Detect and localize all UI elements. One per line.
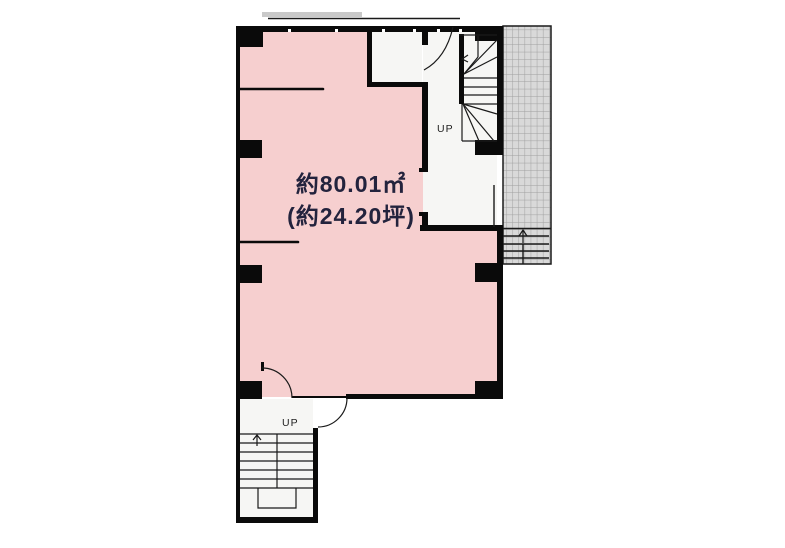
area-sqm-text: 約80.01㎡ (296, 171, 407, 197)
pillar (475, 26, 503, 41)
pillar (236, 140, 262, 158)
pillar (236, 26, 263, 47)
up-label-upper: UP (437, 123, 454, 135)
floor-plan-canvas: UP UP 約80.01㎡ (約24.20坪) (0, 0, 785, 548)
area-tsubo-text: (約24.20坪) (287, 203, 415, 229)
eave-strip (262, 12, 362, 17)
pillar (236, 265, 262, 283)
door-arc (318, 398, 347, 427)
balcony (503, 26, 551, 264)
up-label-lower: UP (282, 417, 299, 429)
floor-plan-svg: UP UP 約80.01㎡ (約24.20坪) (0, 0, 785, 548)
pillar (475, 140, 497, 155)
door-jamb (261, 362, 264, 371)
pillar (236, 381, 262, 399)
storage-room (372, 32, 422, 82)
pillar (475, 263, 497, 282)
pillar (475, 381, 497, 399)
